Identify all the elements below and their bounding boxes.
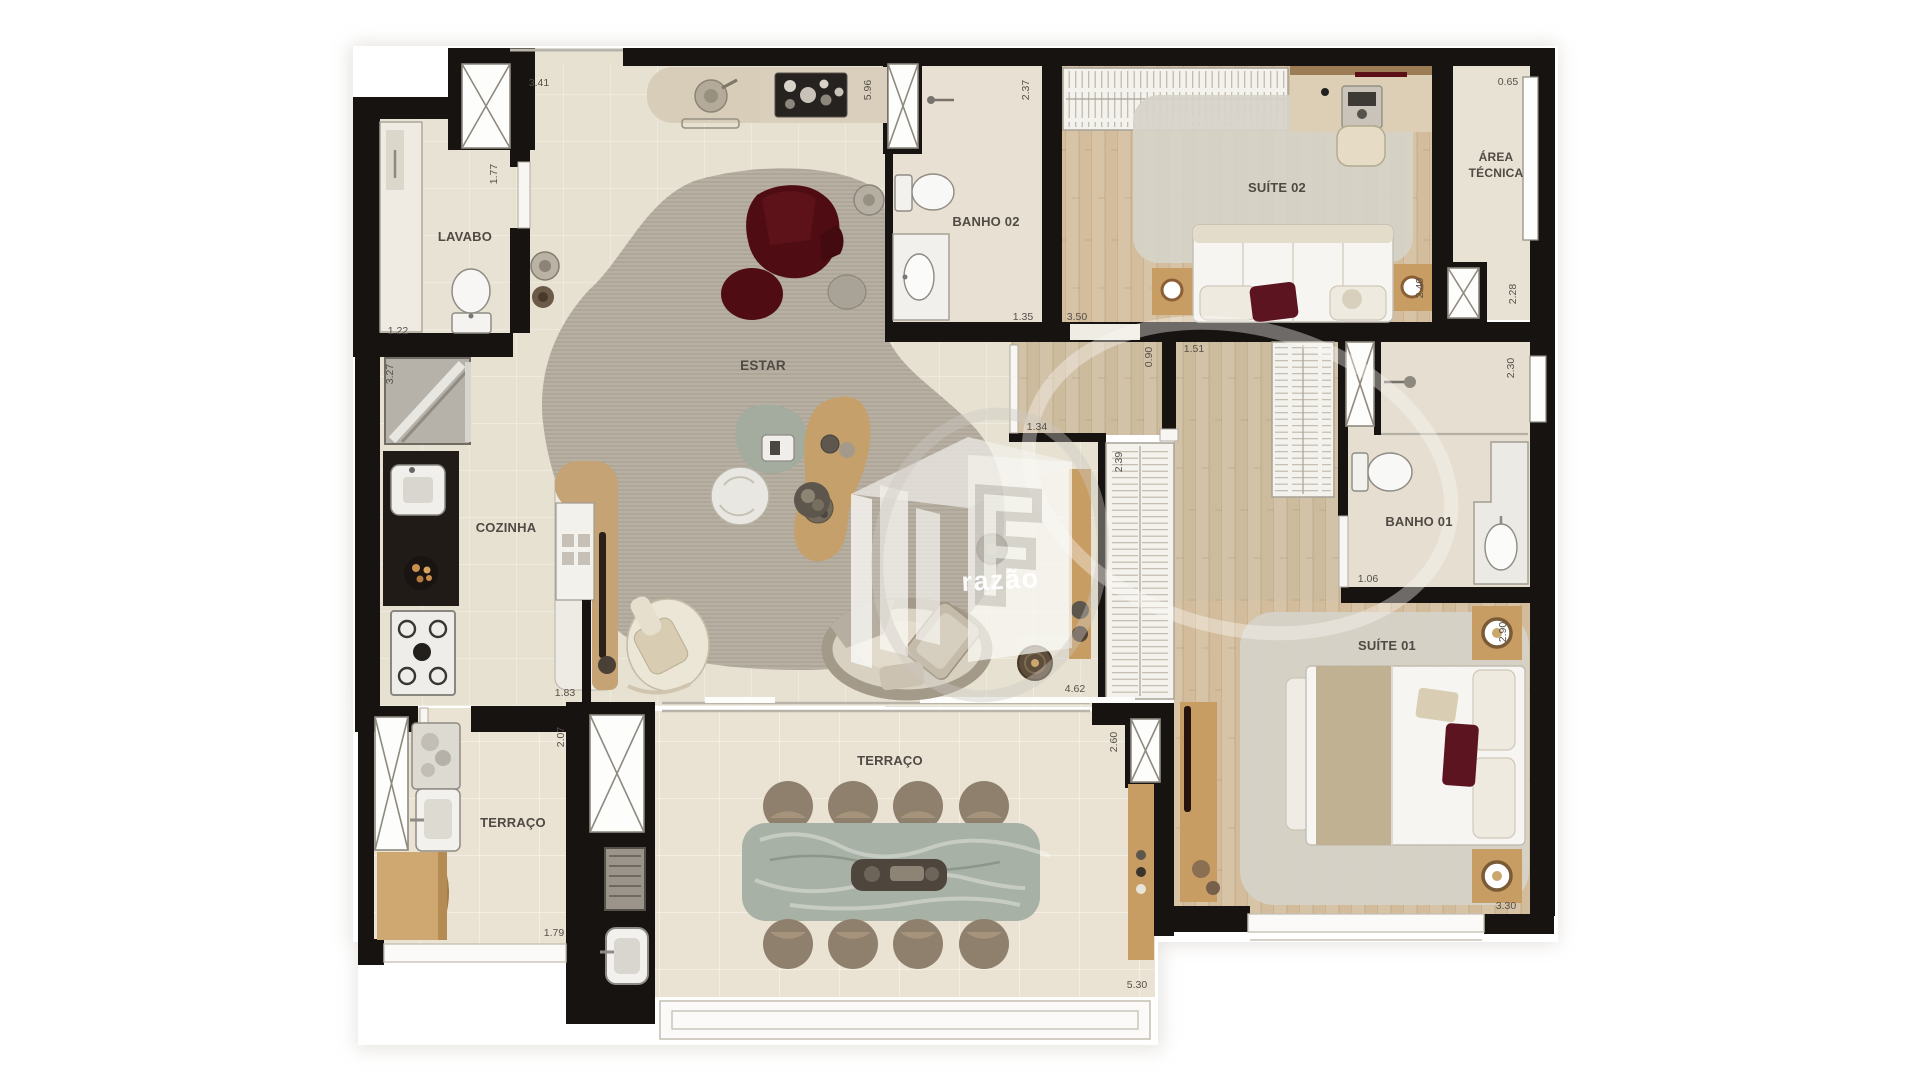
svg-text:ÁREA: ÁREA	[1479, 149, 1514, 164]
svg-text:2.39: 2.39	[1113, 452, 1125, 473]
svg-text:TERRAÇO: TERRAÇO	[480, 815, 546, 830]
svg-text:COZINHA: COZINHA	[476, 520, 537, 535]
svg-text:5.30: 5.30	[1127, 979, 1148, 991]
svg-text:2.40: 2.40	[1414, 278, 1426, 299]
svg-text:5.96: 5.96	[862, 80, 874, 101]
svg-text:SUÍTE 01: SUÍTE 01	[1358, 638, 1416, 653]
svg-text:1.79: 1.79	[544, 927, 565, 939]
svg-text:2.30: 2.30	[1505, 358, 1517, 379]
svg-text:TÉCNICA: TÉCNICA	[1469, 165, 1524, 180]
svg-text:BANHO 02: BANHO 02	[952, 214, 1019, 229]
svg-text:3.30: 3.30	[1496, 900, 1517, 912]
svg-text:2.90: 2.90	[1497, 622, 1509, 643]
svg-text:0.90: 0.90	[1143, 347, 1155, 368]
svg-text:ESTAR: ESTAR	[740, 358, 786, 373]
svg-text:razão: razão	[961, 563, 1041, 597]
svg-text:0.65: 0.65	[1498, 76, 1519, 88]
svg-text:SUÍTE 02: SUÍTE 02	[1248, 180, 1306, 195]
svg-text:1.35: 1.35	[1013, 311, 1034, 323]
svg-text:1.51: 1.51	[1184, 343, 1205, 355]
svg-text:1.83: 1.83	[555, 687, 576, 699]
svg-text:3.27: 3.27	[384, 364, 396, 385]
svg-text:4.62: 4.62	[1065, 683, 1086, 695]
svg-text:BANHO 01: BANHO 01	[1385, 514, 1452, 529]
svg-text:1.77: 1.77	[488, 164, 500, 185]
svg-text:2.07: 2.07	[555, 727, 567, 748]
svg-text:3.50: 3.50	[1067, 311, 1088, 323]
svg-text:2.37: 2.37	[1020, 80, 1032, 101]
svg-text:3.41: 3.41	[529, 77, 550, 89]
svg-text:1.34: 1.34	[1027, 421, 1048, 433]
svg-text:2.28: 2.28	[1507, 284, 1519, 305]
svg-text:TERRAÇO: TERRAÇO	[857, 753, 923, 768]
svg-text:1.22: 1.22	[388, 325, 409, 337]
svg-text:2.60: 2.60	[1108, 732, 1120, 753]
svg-text:LAVABO: LAVABO	[438, 229, 492, 244]
svg-text:1.06: 1.06	[1358, 573, 1379, 585]
